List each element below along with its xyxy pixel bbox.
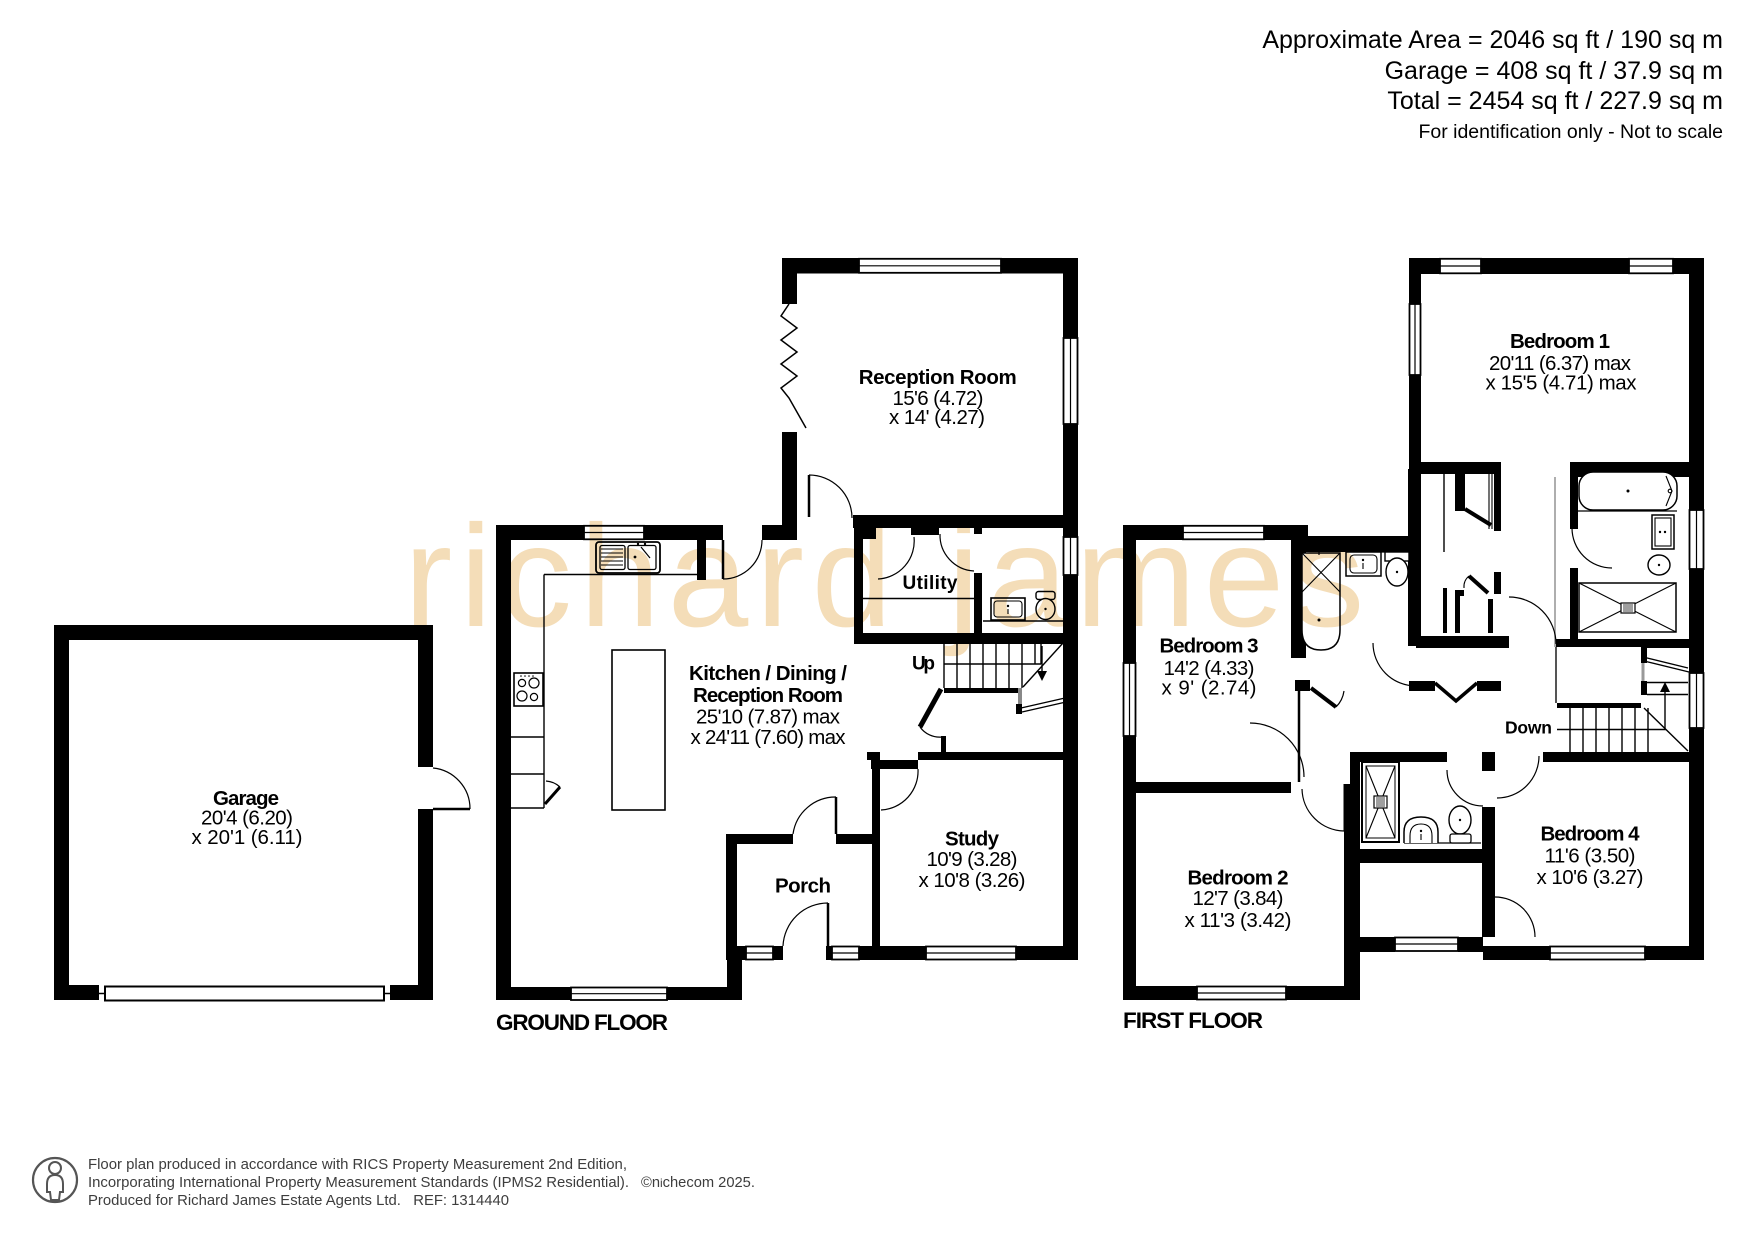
svg-text:11'6 (3.50): 11'6 (3.50): [1545, 844, 1636, 867]
svg-text:Bedroom 4: Bedroom 4: [1541, 822, 1641, 845]
svg-text:Utility: Utility: [903, 573, 958, 594]
svg-text:Reception Room: Reception Room: [693, 684, 843, 707]
svg-text:Up: Up: [912, 653, 935, 674]
svg-text:For identification only - Not: For identification only - Not to scale: [1418, 121, 1723, 143]
svg-text:x 15'5 (4.71) max: x 15'5 (4.71) max: [1486, 372, 1638, 395]
svg-text:Incorporating International Pr: Incorporating International Property Mea…: [88, 1175, 629, 1191]
svg-text:Floor plan produced in accorda: Floor plan produced in accordance with R…: [88, 1157, 627, 1173]
svg-text:FIRST FLOOR: FIRST FLOOR: [1123, 1008, 1263, 1033]
svg-text:x 9' (2.74): x 9' (2.74): [1162, 677, 1257, 700]
svg-text:Porch: Porch: [775, 875, 831, 898]
svg-text:GROUND FLOOR: GROUND FLOOR: [496, 1010, 668, 1035]
svg-text:x 14' (4.27): x 14' (4.27): [889, 406, 985, 429]
svg-text:©nichecom 2025.: ©nichecom 2025.: [641, 1175, 755, 1191]
svg-text:Kitchen / Dining /: Kitchen / Dining /: [689, 662, 847, 685]
svg-text:x 24'11 (7.60) max: x 24'11 (7.60) max: [691, 726, 847, 749]
svg-text:Down: Down: [1505, 718, 1552, 738]
svg-text:Bedroom 3: Bedroom 3: [1160, 634, 1259, 657]
svg-text:Produced for Richard James Est: Produced for Richard James Estate Agents…: [88, 1193, 509, 1209]
svg-text:x 11'3 (3.42): x 11'3 (3.42): [1185, 909, 1292, 932]
svg-text:x 10'6 (3.27): x 10'6 (3.27): [1537, 866, 1644, 889]
svg-text:Garage = 408 sq ft / 37.9 sq m: Garage = 408 sq ft / 37.9 sq m: [1385, 57, 1723, 85]
svg-text:x 20'1 (6.11): x 20'1 (6.11): [192, 826, 303, 849]
svg-text:Bedroom 1: Bedroom 1: [1510, 330, 1610, 353]
svg-text:x 10'8 (3.26): x 10'8 (3.26): [919, 869, 1026, 892]
svg-text:Reception Room: Reception Room: [859, 366, 1017, 389]
svg-text:Total = 2454 sq ft / 227.9 sq: Total = 2454 sq ft / 227.9 sq m: [1387, 87, 1723, 115]
svg-text:12'7 (3.84): 12'7 (3.84): [1193, 887, 1284, 910]
svg-text:10'9 (3.28): 10'9 (3.28): [927, 848, 1018, 871]
svg-text:Approximate Area = 2046 sq ft: Approximate Area = 2046 sq ft / 190 sq m: [1262, 26, 1723, 54]
